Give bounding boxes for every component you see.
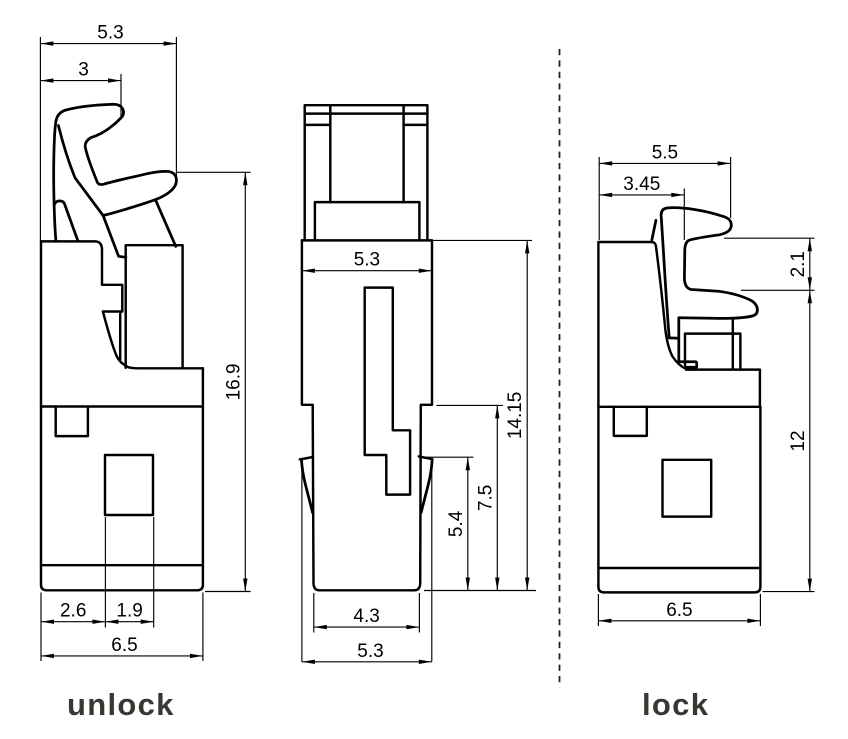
svg-text:5.3: 5.3	[97, 23, 123, 44]
svg-text:12: 12	[788, 430, 809, 451]
svg-text:5.5: 5.5	[652, 142, 678, 163]
svg-text:6.5: 6.5	[111, 635, 137, 656]
svg-text:unlock: unlock	[67, 687, 175, 722]
svg-text:3: 3	[78, 60, 89, 81]
svg-text:16.9: 16.9	[223, 363, 244, 400]
svg-text:7.5: 7.5	[475, 485, 496, 511]
svg-text:6.5: 6.5	[666, 600, 692, 621]
svg-text:5.3: 5.3	[357, 641, 383, 662]
svg-text:lock: lock	[642, 687, 709, 722]
svg-text:2.6: 2.6	[60, 601, 86, 622]
svg-text:14.15: 14.15	[505, 392, 526, 440]
svg-text:3.45: 3.45	[623, 174, 660, 195]
svg-text:2.1: 2.1	[788, 251, 809, 277]
svg-text:4.3: 4.3	[353, 606, 379, 627]
svg-text:5.4: 5.4	[446, 510, 467, 537]
svg-text:1.9: 1.9	[116, 601, 142, 622]
svg-text:5.3: 5.3	[354, 250, 380, 271]
